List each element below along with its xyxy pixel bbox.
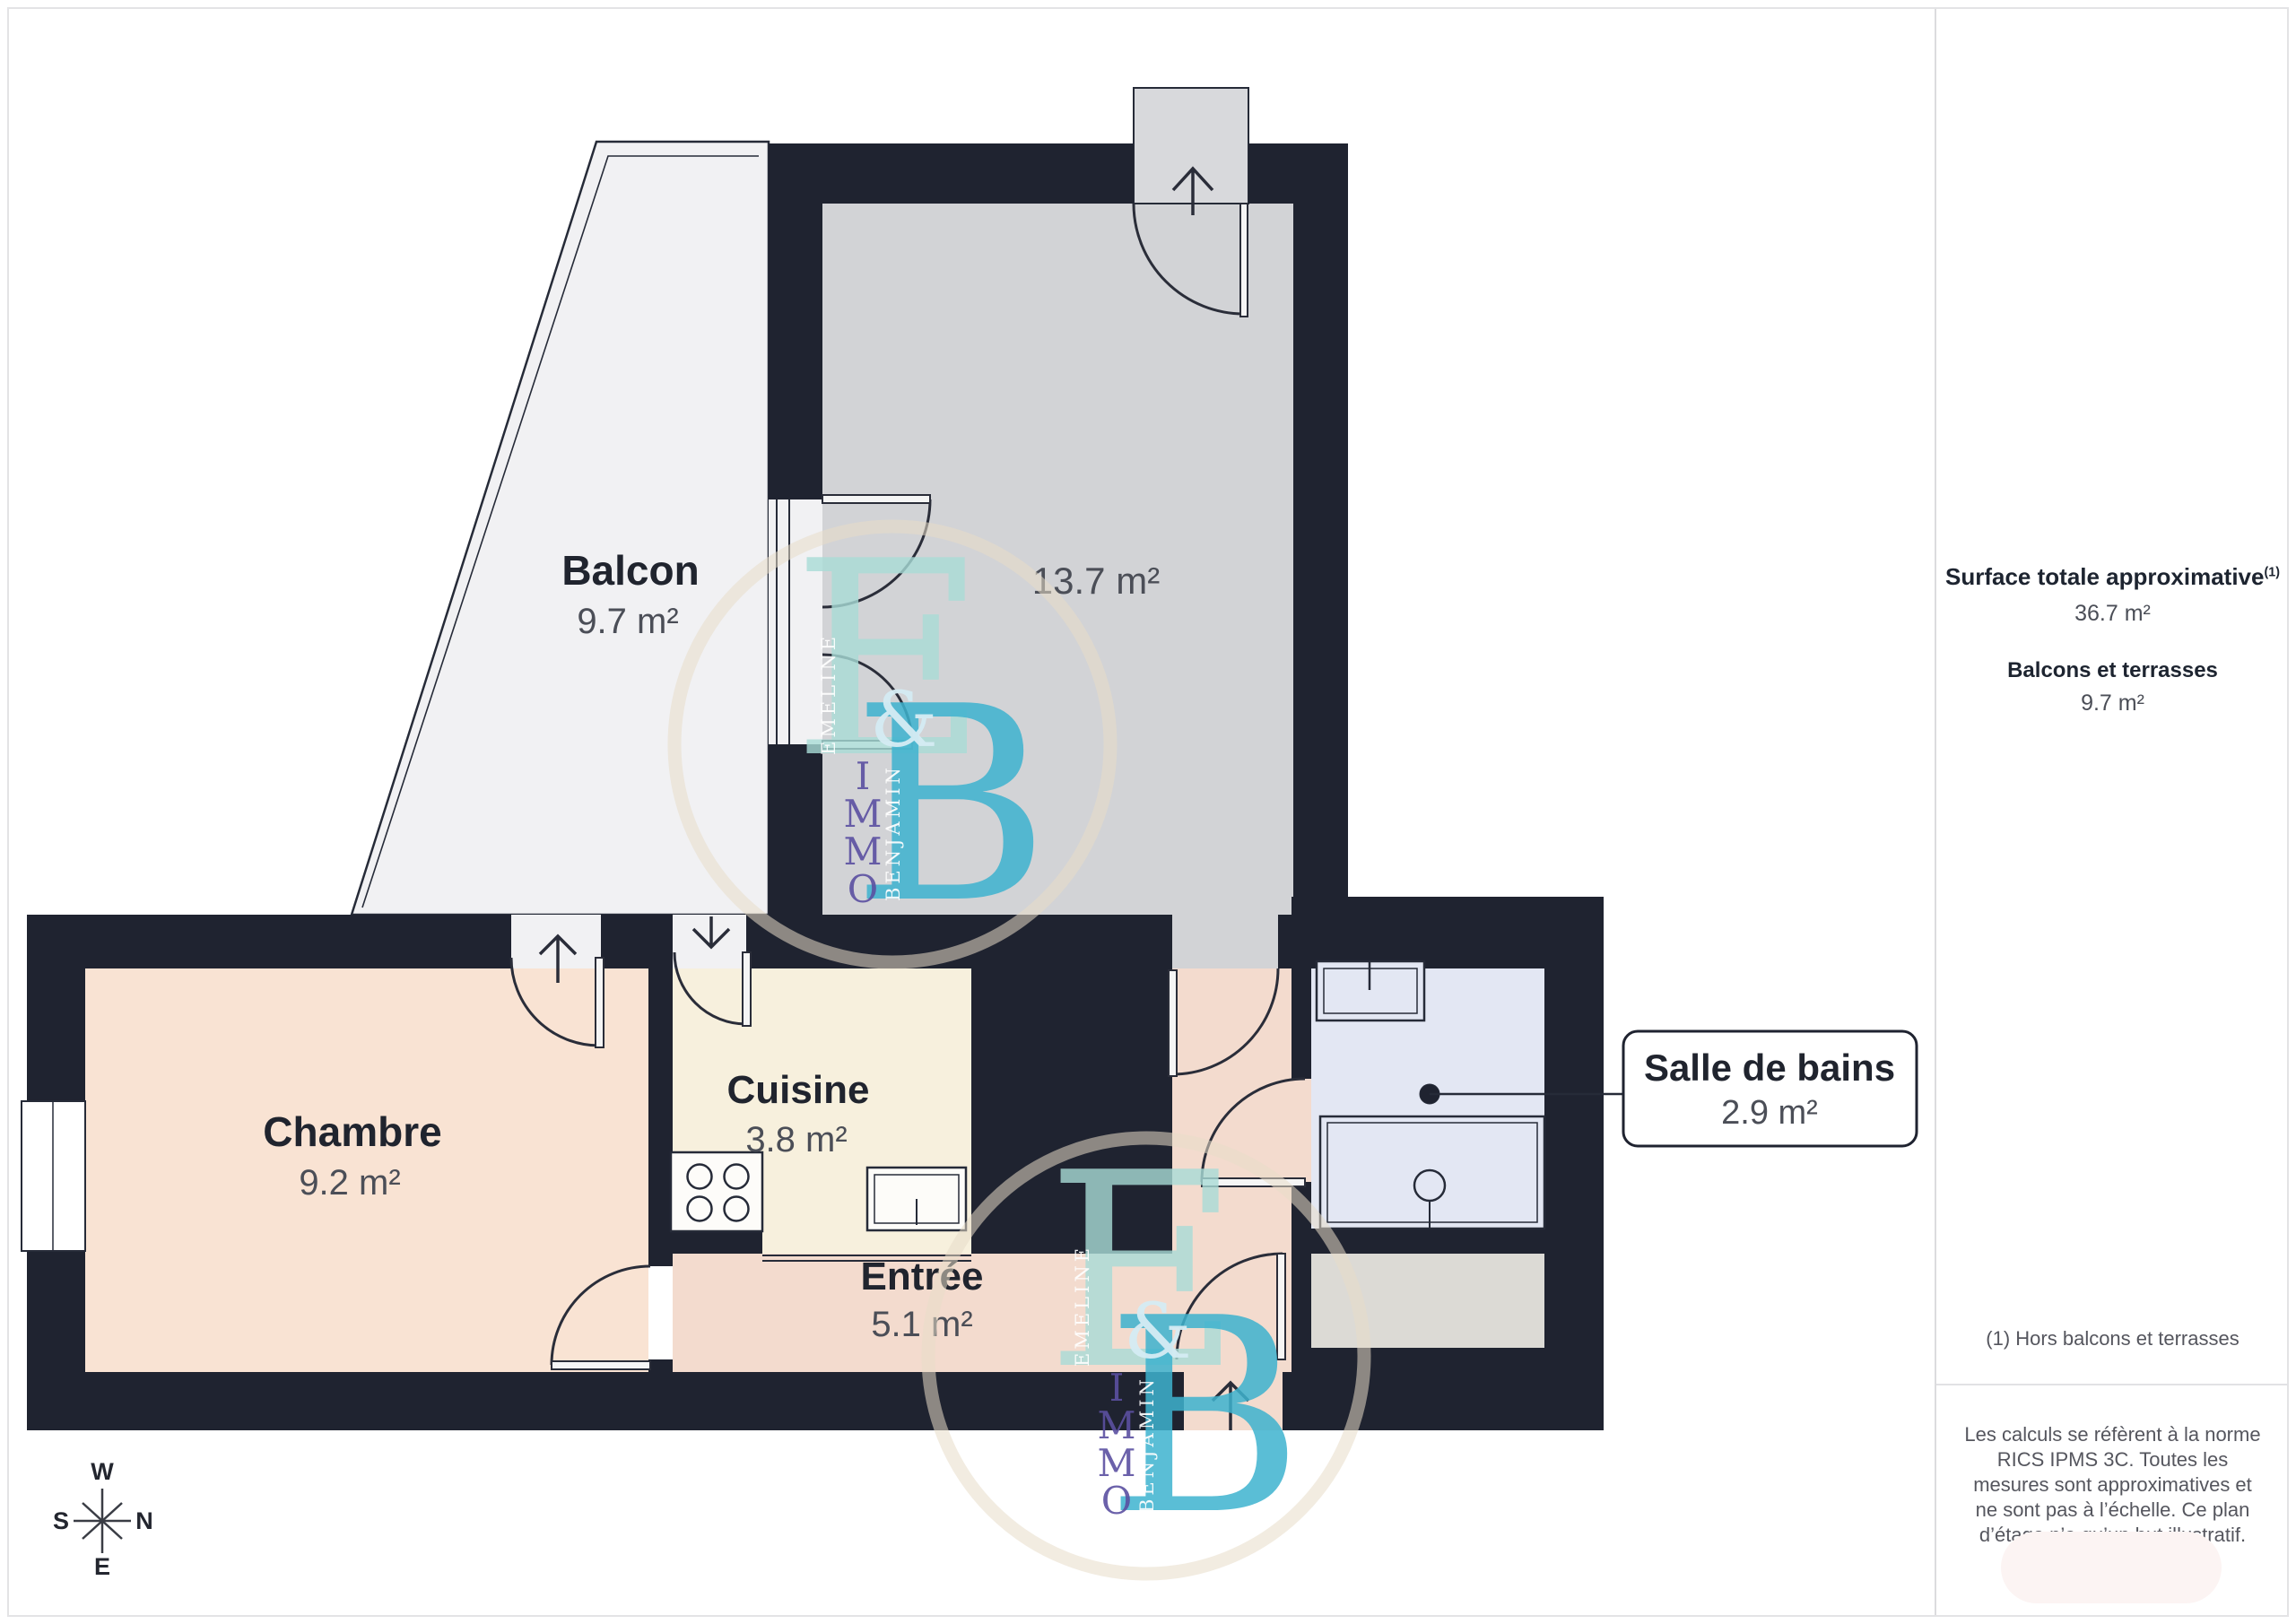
compass-s: S (53, 1507, 69, 1534)
chambre-balcony-gap (511, 915, 601, 968)
bathroom-sink-icon (1317, 961, 1424, 1020)
cuisine-name-label: Cuisine (727, 1068, 870, 1112)
total-area-value: 36.7 m² (1936, 601, 2289, 627)
compass-rose: W N S E (53, 1458, 153, 1580)
cuisine-area-label: 3.8 m² (745, 1120, 847, 1159)
disclaimer-text: Les calculs se réfèrent à la norme RICS … (1963, 1422, 2262, 1548)
stove-icon (671, 1152, 762, 1231)
total-area-title: Surface totale approximative(1) (1936, 563, 2289, 591)
balcon-name-label: Balcon (561, 547, 699, 594)
entry-recess (1134, 88, 1248, 204)
compass-w: W (91, 1458, 114, 1485)
chambre-area-label: 9.2 m² (299, 1163, 400, 1203)
shower-tray-icon (1320, 1116, 1544, 1229)
bathroom-name-label: Salle de bains (1644, 1046, 1895, 1089)
bathroom-area-label: 2.9 m² (1721, 1094, 1818, 1132)
entree-area-label: 5.1 m² (871, 1305, 972, 1344)
footnote-marker: (1) (2264, 565, 2279, 579)
compass-e: E (94, 1553, 110, 1580)
balcon-area-label: 9.7 m² (577, 602, 678, 641)
faded-badge (2001, 1532, 2222, 1603)
entree-name-label: Entrée (861, 1255, 984, 1298)
bathroom-door-gap (1291, 1079, 1311, 1182)
balconies-value: 9.7 m² (1936, 690, 2289, 716)
kitchen-sink-icon (867, 1168, 966, 1230)
room-balcon-floor (352, 142, 769, 915)
measurement-sidebar: Surface totale approximative(1) 36.7 m² … (1935, 7, 2289, 1616)
chambre-window (22, 1101, 85, 1251)
balconies-title: Balcons et terrasses (1936, 658, 2289, 683)
cuisine-balcony-gap (673, 915, 746, 968)
compass-n: N (135, 1507, 153, 1534)
floorplan-page: E B & EMELINE BENJAMIN I M M O (0, 0, 2296, 1624)
sejour-corridor-gap (1172, 915, 1278, 968)
chambre-name-label: Chambre (263, 1108, 441, 1155)
footnote-text: (1) Hors balcons et terrasses (1936, 1327, 2289, 1350)
sidebar-divider (1936, 1384, 2289, 1385)
